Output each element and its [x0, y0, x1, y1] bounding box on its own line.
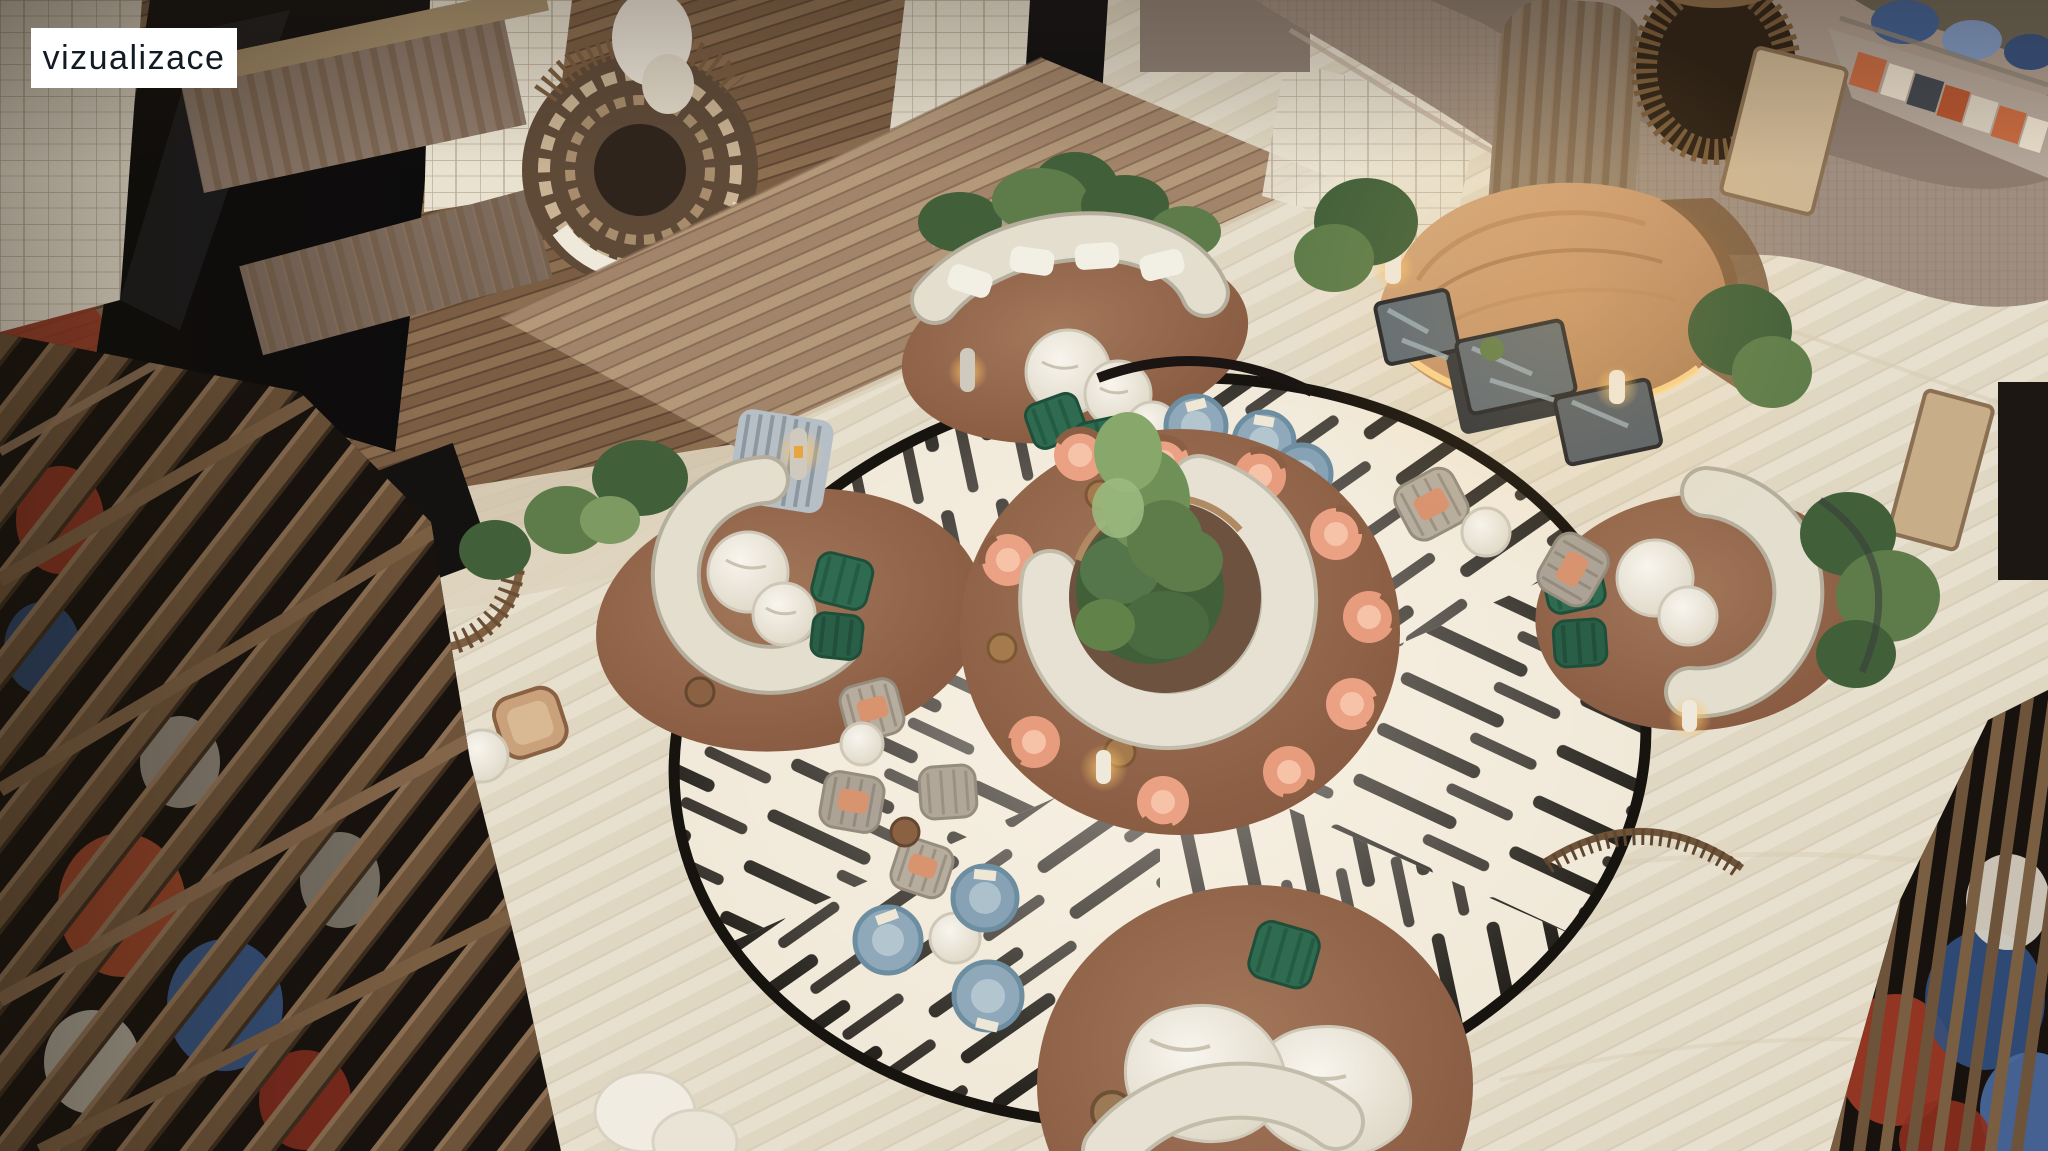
sofa-pillow: [1074, 241, 1120, 270]
dark-doorway: [1998, 382, 2048, 580]
scene-canvas: [0, 0, 2048, 1151]
candle-lamp: [1668, 696, 1712, 740]
gray-armchair: [818, 769, 887, 835]
side-table: [841, 723, 883, 765]
wood-stool: [891, 818, 919, 846]
lobby-visualization-scene: vizualizace: [0, 0, 2048, 1151]
marble-coffee-table: [1659, 587, 1717, 645]
visualization-label-text: vizualizace: [43, 39, 226, 78]
plant: [1816, 620, 1896, 688]
bronze-side-table: [988, 634, 1016, 662]
green-armchair: [810, 612, 864, 661]
blue-tub-chair: [954, 962, 1022, 1033]
bronze-side-table: [686, 678, 714, 706]
ambient-shade-left: [0, 0, 420, 1151]
visualization-label: vizualizace: [31, 28, 237, 88]
gray-armchair: [918, 764, 977, 820]
blue-tub-chair: [855, 907, 921, 973]
reception-warm-glow: [1280, 20, 1840, 580]
blue-tub-chair: [953, 866, 1017, 930]
green-armchair: [1553, 618, 1608, 668]
candle-lamp: [1080, 744, 1128, 792]
